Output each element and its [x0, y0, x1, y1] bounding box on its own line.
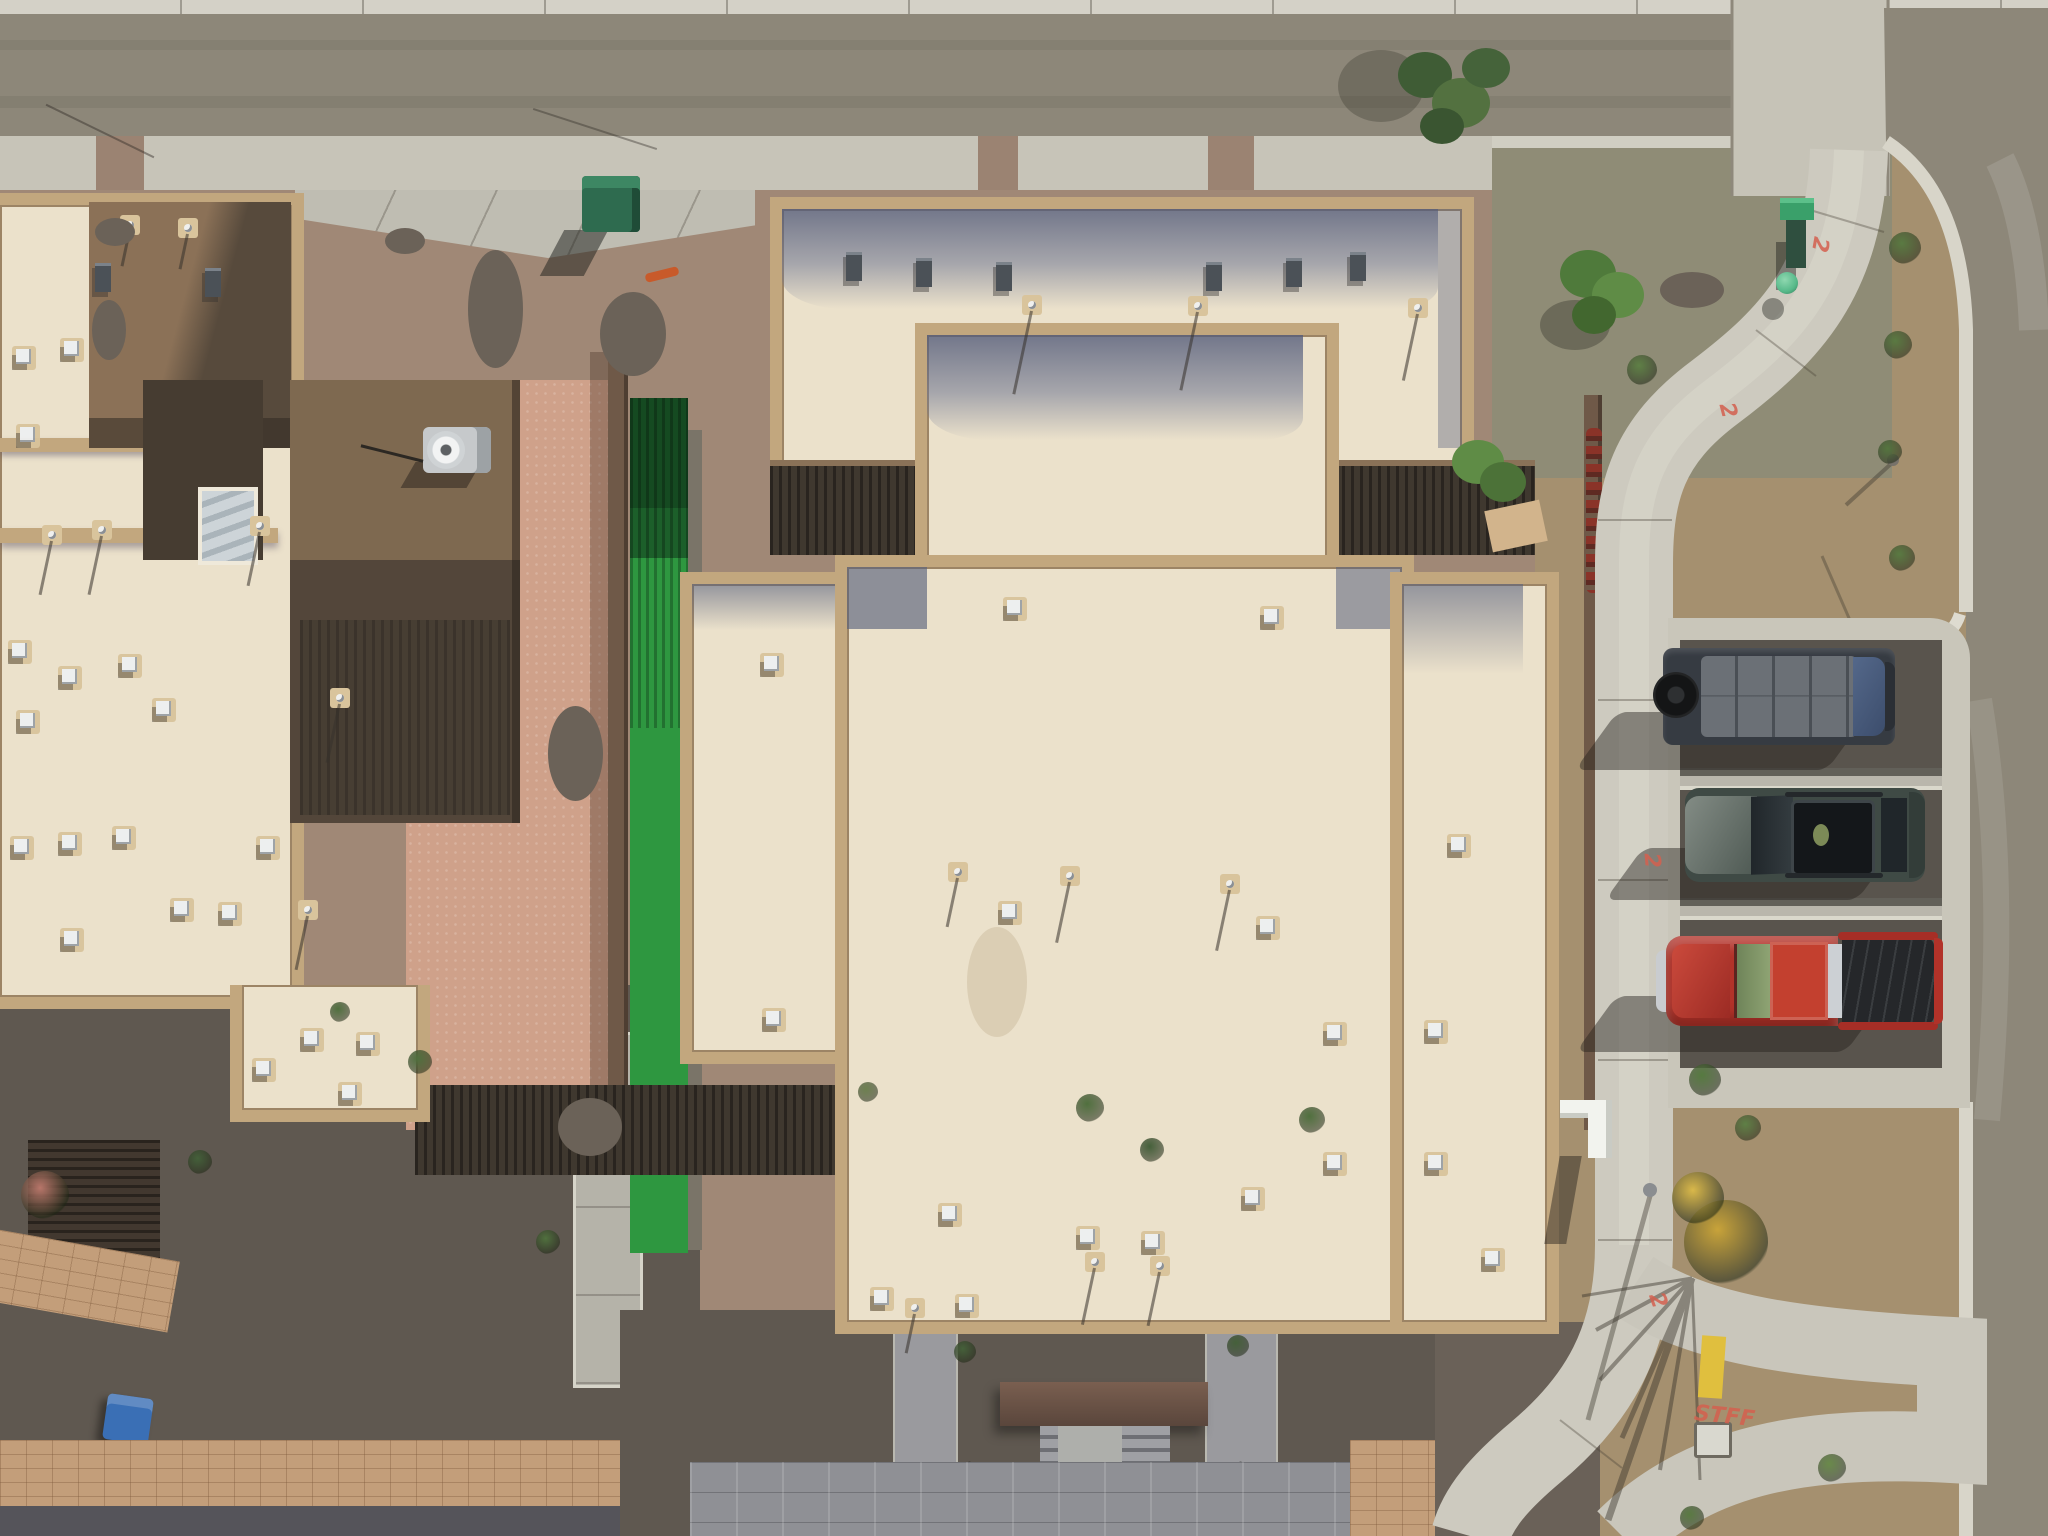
roof-vent-white — [1141, 1231, 1165, 1255]
courtyard-path-left — [893, 1318, 958, 1466]
stall-divider — [1680, 768, 1942, 788]
fence — [608, 343, 628, 1130]
shrub — [21, 1171, 69, 1219]
roof-vent-white — [938, 1203, 962, 1227]
ac-unit — [423, 427, 491, 473]
right-wing-roof — [1390, 572, 1559, 1334]
roof-vent-white — [16, 424, 40, 448]
entry-canopy — [1000, 1382, 1208, 1426]
roof-vent-white — [1447, 834, 1471, 858]
shrub — [188, 1150, 212, 1174]
roof-vent-white — [218, 902, 242, 926]
shrub — [1889, 545, 1915, 571]
concrete-apron — [295, 190, 755, 258]
roof-vent-white — [1241, 1187, 1265, 1211]
stall-divider — [1680, 898, 1942, 918]
roof-vent-white — [256, 836, 280, 860]
suv-occupant — [1813, 824, 1829, 846]
rock-cluster — [558, 1098, 622, 1156]
roof-pipe — [298, 900, 318, 920]
suv-tailgate — [1909, 792, 1925, 878]
truck-tailgate — [1934, 938, 1943, 1024]
roof-pipe — [250, 516, 270, 536]
rock-cluster — [95, 218, 135, 246]
shrub — [1227, 1335, 1249, 1357]
paver-walk-shadow — [0, 1506, 690, 1536]
shrub — [1627, 355, 1657, 385]
road-tire-streak — [0, 96, 2048, 108]
shrub — [1818, 1454, 1846, 1482]
shrub — [1140, 1138, 1164, 1162]
cargo-van-vehicle — [1663, 648, 1895, 745]
roof-vent-dark — [1206, 262, 1222, 291]
blue-bin — [102, 1393, 154, 1445]
shrub — [1884, 331, 1912, 359]
roof-vent-white — [58, 666, 82, 690]
rock-cluster — [385, 228, 425, 254]
roof-pipe — [1188, 296, 1208, 316]
shrub — [858, 1082, 878, 1102]
truck-rear-window-bar — [1828, 944, 1842, 1018]
roof-vent-dark — [1286, 258, 1302, 287]
parapet-shadow — [927, 335, 1303, 440]
courtyard-right — [1435, 1322, 1600, 1536]
shrub — [1076, 1094, 1104, 1122]
roof-stain — [967, 927, 1027, 1037]
roof-pipe — [1150, 1256, 1170, 1276]
roof-vent-white — [1260, 606, 1284, 630]
van-windshield — [1853, 657, 1885, 736]
rock-cluster — [92, 300, 126, 360]
roof-pipe — [1408, 298, 1428, 318]
step-shadow — [847, 567, 927, 629]
shrub — [1680, 1506, 1704, 1530]
shrub — [954, 1341, 976, 1363]
roof-vent-white — [1256, 916, 1280, 940]
roof-vent-white — [60, 338, 84, 362]
truck-bed-rail — [1838, 1022, 1938, 1030]
roof-vent-white — [1424, 1020, 1448, 1044]
roof-vent-white — [1323, 1022, 1347, 1046]
ac-fan-icon — [427, 431, 465, 469]
roof-pipe — [905, 1298, 925, 1318]
shrub — [1735, 1115, 1761, 1141]
mailbox-monument — [1588, 1100, 1612, 1158]
suv-rear-glass — [1881, 798, 1907, 872]
east-wall-slats — [300, 620, 510, 815]
roof-vent-dark — [205, 268, 221, 297]
stall-line — [1680, 916, 1942, 920]
roof-vent-white — [170, 898, 194, 922]
shrub — [1689, 1064, 1721, 1096]
roof-vent-white — [60, 928, 84, 952]
curb-joint-plate — [1768, 0, 1810, 12]
green-pipe-marker — [1776, 272, 1798, 294]
roof-vent-white — [1481, 1248, 1505, 1272]
roof-vent-white — [356, 1032, 380, 1056]
truck-hood — [1672, 944, 1730, 1018]
roof-vent-dark — [996, 262, 1012, 291]
roof-vent-dark — [846, 252, 862, 281]
roof-vent-white — [955, 1294, 979, 1318]
parapet-shadow — [1402, 584, 1523, 674]
sidewalk-top — [0, 136, 1492, 190]
pickup-truck-vehicle — [1656, 932, 1943, 1031]
patio-left — [770, 460, 915, 555]
suv-pano-roof — [1791, 800, 1875, 876]
rock-cluster — [1660, 272, 1724, 308]
roof-vent-white — [118, 654, 142, 678]
roof-vent-white — [16, 710, 40, 734]
paver-walk-bottom-right — [1350, 1440, 1435, 1536]
rock-cluster — [600, 292, 666, 376]
roof-vent-white — [152, 698, 176, 722]
shrub — [1672, 1172, 1724, 1224]
utility-box — [582, 176, 640, 232]
roof-vent-dark — [95, 263, 111, 292]
roof-pipe — [92, 520, 112, 540]
roof-vent-white — [10, 836, 34, 860]
truck-roof — [1770, 942, 1828, 1020]
roof-pipe — [178, 218, 198, 238]
green-post-stem — [1786, 220, 1806, 268]
roof-vent-white — [12, 346, 36, 370]
tall-section-upper-roof — [915, 323, 1339, 579]
rock-cluster — [468, 250, 523, 368]
road-tire-streak — [0, 40, 2048, 50]
roof-vent-white — [870, 1287, 894, 1311]
orange-marker — [644, 266, 679, 283]
roof-pipe — [330, 688, 350, 708]
red-vine — [1586, 428, 1602, 593]
roof-vent-white — [1323, 1152, 1347, 1176]
east-shadow — [1438, 209, 1462, 448]
shrub — [536, 1230, 560, 1254]
road-top — [0, 14, 2048, 136]
van-front-cap — [1885, 662, 1895, 731]
suv-roof-rail — [1785, 792, 1883, 797]
sidewalk-gravel-gap — [96, 136, 144, 190]
roof-vent-dark — [1350, 252, 1366, 281]
roof-pipe — [1085, 1252, 1105, 1272]
roof-vent-white — [58, 832, 82, 856]
truck-bed — [1842, 938, 1934, 1024]
left-building-se-roof — [230, 985, 430, 1122]
roof-vent-white — [338, 1082, 362, 1106]
truck-windshield — [1734, 944, 1774, 1018]
sidewalk-gravel-gap — [1208, 136, 1254, 190]
shrub — [1889, 232, 1921, 264]
roof-vent-dark — [916, 258, 932, 287]
van-spare-tire-icon — [1653, 672, 1699, 718]
suv-roof-rail — [1785, 873, 1883, 878]
sidewalk-gravel-gap — [978, 136, 1018, 190]
suv-windshield — [1751, 795, 1793, 874]
shrub — [330, 1002, 350, 1022]
suv-vehicle — [1685, 788, 1925, 882]
roof-vent-white — [1003, 597, 1027, 621]
parapet-shadow — [782, 209, 1438, 309]
shrub — [408, 1050, 432, 1074]
aerial-photo-stage: 2222STFF — [0, 0, 2048, 1536]
roof-vent-white — [112, 826, 136, 850]
roof-vent-white — [1076, 1226, 1100, 1250]
rock-cluster — [548, 706, 603, 801]
roof-vent-white — [252, 1058, 276, 1082]
curb-line — [1492, 136, 1738, 148]
shrub — [1299, 1107, 1325, 1133]
roof-pipe — [1220, 874, 1240, 894]
center-lower-roof — [835, 555, 1414, 1334]
plaza-pavers — [690, 1462, 1350, 1536]
suv-hood — [1685, 796, 1757, 874]
roof-pipe — [42, 525, 62, 545]
truck-bed-rail — [1838, 932, 1938, 940]
roof-pipe — [1022, 295, 1042, 315]
green-post-marker — [1780, 198, 1814, 220]
roof-vent-white — [998, 901, 1022, 925]
far-curb-strip — [0, 0, 2048, 14]
shrub — [1878, 440, 1902, 464]
roof-pipe — [948, 862, 968, 882]
roof-vent-white — [1424, 1152, 1448, 1176]
roof-pipe — [1060, 866, 1080, 886]
skylight-window — [198, 487, 258, 565]
yellow-curb — [1698, 1335, 1726, 1399]
patio-fence-band — [415, 1085, 835, 1175]
spray-paint-mark: 2 — [1639, 852, 1665, 869]
paver-walk-bottom-left — [0, 1440, 690, 1506]
roof-vent-white — [760, 653, 784, 677]
roof-vent-white — [762, 1008, 786, 1032]
roof-vent-white — [300, 1028, 324, 1052]
roof-vent-white — [8, 640, 32, 664]
van-roof — [1701, 656, 1857, 737]
